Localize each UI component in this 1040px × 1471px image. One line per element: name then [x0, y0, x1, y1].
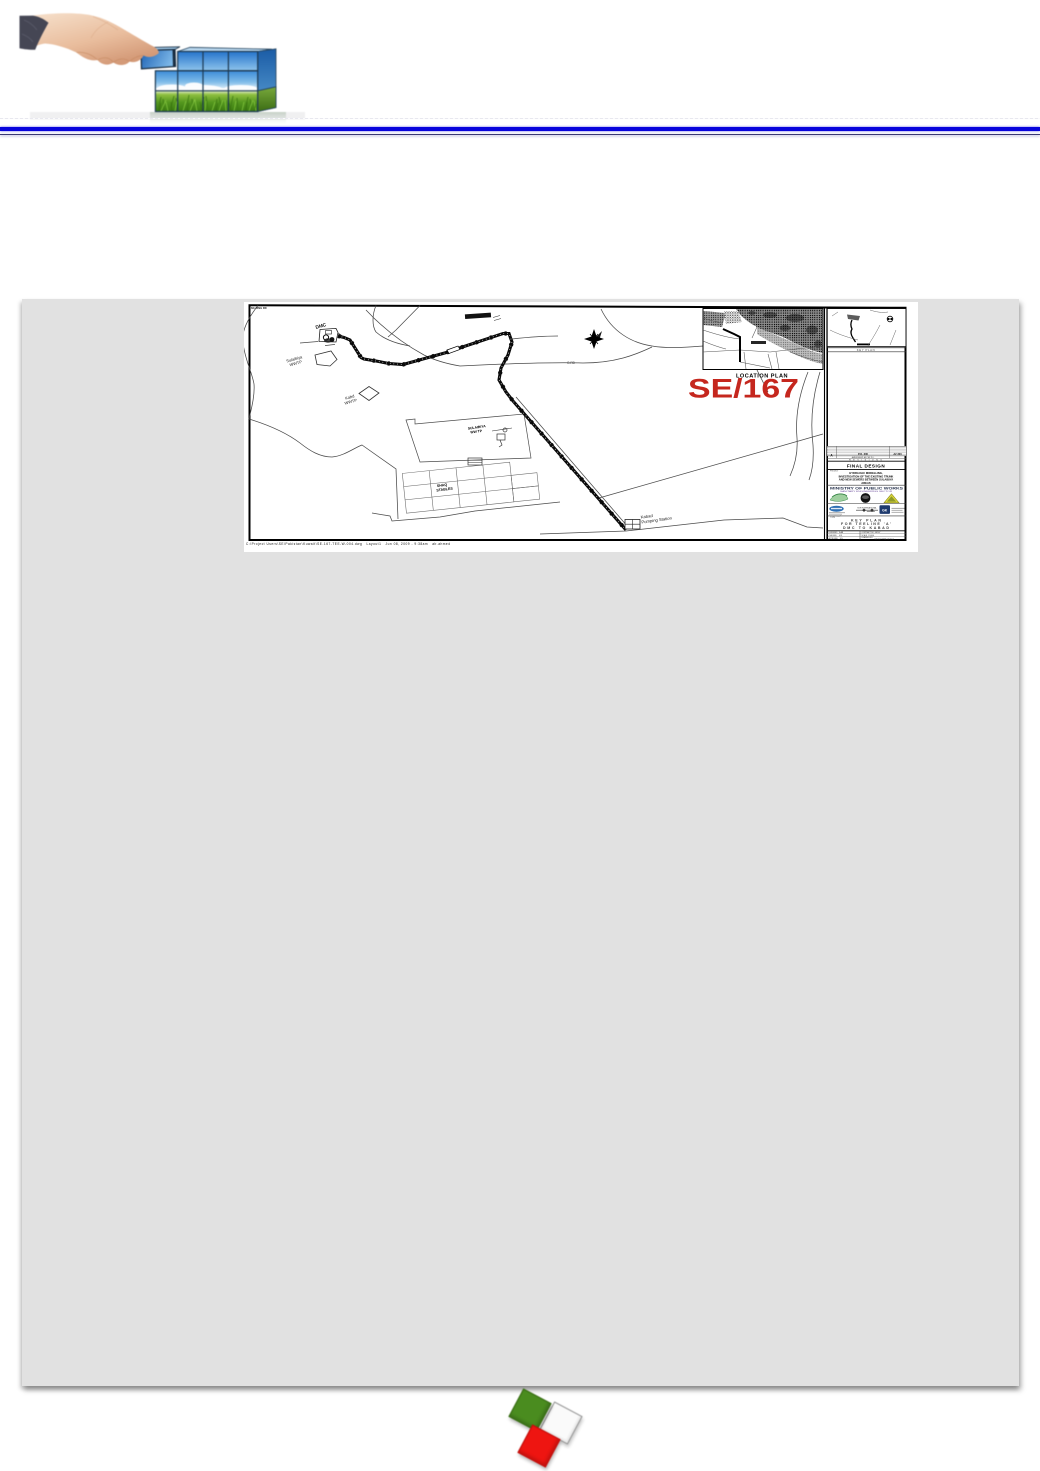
- svg-text:SANITARY ENGINEERING SECTOR: SANITARY ENGINEERING SECTOR: [840, 490, 893, 493]
- svg-text:DMC TO KABAD: DMC TO KABAD: [843, 526, 889, 530]
- svg-text:TITLE: TITLE: [830, 517, 836, 519]
- svg-text:C:\Project Users\SE\Pakistan\K: C:\Project Users\SE\Pakistan\Kuwait\SE-1…: [246, 542, 450, 546]
- svg-text:CHECKED M.K: CHECKED M.K: [829, 535, 843, 537]
- svg-text:SE/167-TEE-W-004: SE/167-TEE-W-004: [874, 538, 894, 541]
- svg-text:SE/167: SE/167: [688, 374, 799, 404]
- svg-text:6th RING RD: 6th RING RD: [251, 306, 267, 310]
- svg-text:PROJECT: PROJECT: [830, 471, 839, 473]
- svg-text:DESIGNED A.AB: DESIGNED A.AB: [829, 531, 844, 534]
- svg-text:P.O. 300: P.O. 300: [858, 452, 868, 456]
- svg-text:G.RD: G.RD: [567, 361, 576, 365]
- svg-text:DRAWING NO.: DRAWING NO.: [862, 536, 874, 539]
- svg-text:A2 300: A2 300: [893, 452, 902, 456]
- svg-text:AREAS: AREAS: [861, 481, 871, 485]
- svg-text:APPROVED S.N: APPROVED S.N: [829, 537, 844, 540]
- svg-text:CONTRACT NO. SE/167: CONTRACT NO. SE/167: [862, 531, 881, 534]
- svg-text:SSH INTERNATIONAL: SSH INTERNATIONAL: [857, 506, 876, 509]
- svg-text:MINISTRY OF PUBLIC WORKS: MINISTRY OF PUBLIC WORKS: [830, 486, 904, 490]
- svg-text:FINAL DESIGN: FINAL DESIGN: [847, 463, 886, 468]
- svg-text:KEY PLAN: KEY PLAN: [857, 348, 875, 352]
- svg-text:GK: GK: [882, 508, 888, 512]
